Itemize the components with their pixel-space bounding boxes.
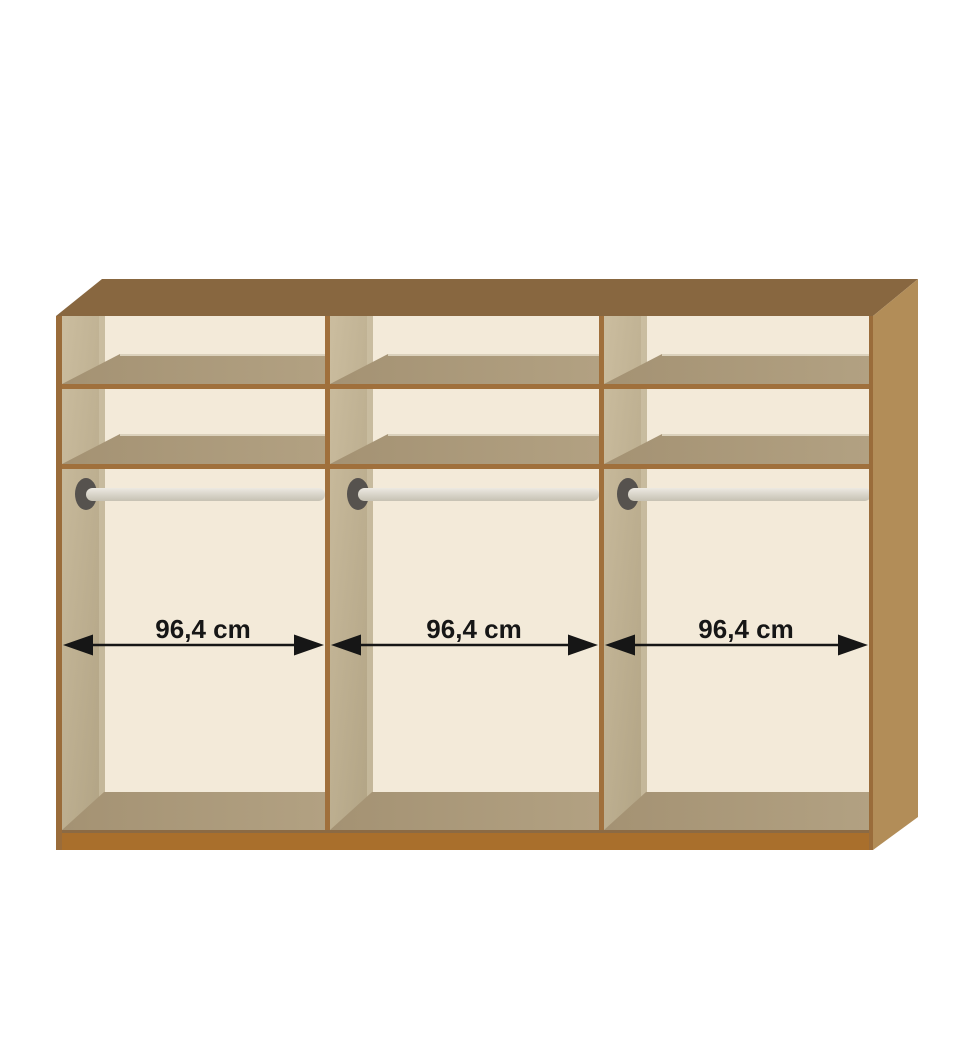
side-face-highlight [641, 316, 647, 830]
hanging-rail [86, 488, 325, 501]
compartment-1 [62, 316, 325, 830]
side-face [604, 316, 647, 830]
shelf-back-edge [120, 434, 325, 436]
side-panel [873, 279, 918, 850]
compartment-3 [604, 316, 871, 830]
dimension-label: 96,4 cm [155, 614, 250, 644]
shelf-back-edge [120, 354, 325, 356]
divider-1 [325, 316, 330, 830]
compartment-2 [330, 316, 599, 830]
dimension-label: 96,4 cm [698, 614, 793, 644]
shelf-edge-line [56, 464, 873, 469]
wardrobe-diagram: 96,4 cm 96,4 cm 96,4 cm [0, 0, 970, 1052]
hanging-rail [628, 488, 871, 501]
hanging-rail [358, 488, 599, 501]
side-face [330, 316, 373, 830]
compartment-floor [330, 792, 599, 830]
top-panel [56, 279, 918, 316]
shelf-back-edge [662, 434, 871, 436]
side-face [62, 316, 105, 830]
wardrobe-dimension-diagram: 96,4 cm 96,4 cm 96,4 cm [0, 0, 970, 1052]
shelf-edge-line [56, 384, 873, 389]
left-frame-edge [56, 316, 62, 850]
shelf-back-edge [388, 354, 599, 356]
plinth-seam [56, 830, 873, 833]
compartment-floor [62, 792, 325, 830]
shelf-back-edge [388, 434, 599, 436]
right-frame-edge [869, 316, 873, 850]
side-face-highlight [367, 316, 373, 830]
divider-2 [599, 316, 604, 830]
side-face-highlight [99, 316, 105, 830]
dimension-label: 96,4 cm [426, 614, 521, 644]
shelf-back-edge [662, 354, 871, 356]
compartment-floor [604, 792, 871, 830]
